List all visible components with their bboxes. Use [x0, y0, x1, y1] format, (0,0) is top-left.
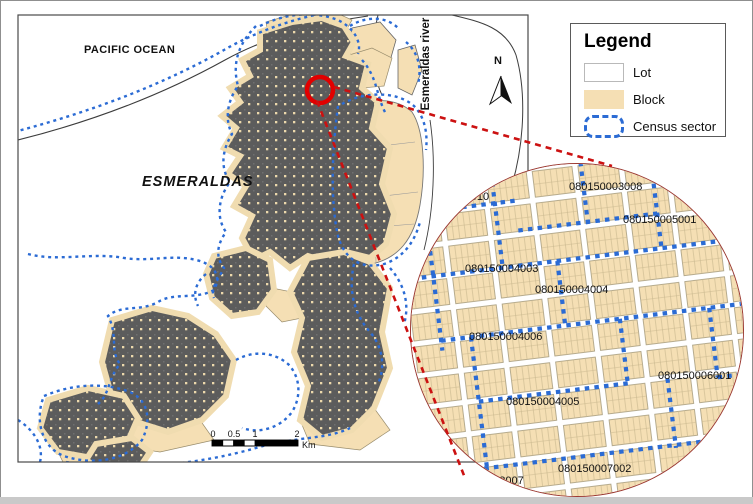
- esmeraldas-label: ESMERALDAS: [142, 174, 254, 190]
- pacific-ocean-label: PACIFIC OCEAN: [84, 44, 175, 56]
- census-sector-code: 080150004006: [469, 331, 542, 343]
- map-figure: PACIFIC OCEAN ESMERALDAS Esmeraldas rive…: [0, 0, 753, 504]
- scale-tick: 0: [210, 429, 215, 439]
- census-sector-code: 080150005001: [623, 214, 696, 226]
- census-sector-code: 080150007002: [558, 463, 631, 475]
- legend-item-label: Census sector: [633, 119, 716, 134]
- legend-item-lot: Lot: [584, 61, 725, 83]
- census-sector-code: 150003010: [434, 191, 489, 203]
- figure-bottom-border: [0, 497, 753, 504]
- scale-tick: 0.5: [228, 429, 241, 439]
- census-sector-code: 080150004004: [535, 284, 608, 296]
- lot-swatch: [584, 63, 624, 82]
- legend-panel: Legend Lot Block Census sector: [570, 23, 726, 137]
- scale-bar: [212, 440, 298, 446]
- census-sector-code: 080150003008: [569, 181, 642, 193]
- census-sector-code: 080150004005: [506, 396, 579, 408]
- legend-item-label: Block: [633, 92, 665, 107]
- scale-tick: 2: [294, 429, 299, 439]
- census-sector-code: 008007: [487, 475, 524, 487]
- scale-unit: Km: [302, 440, 316, 450]
- north-label: N: [494, 55, 502, 67]
- esmeraldas-river-label: Esmeraldas river: [420, 4, 432, 124]
- magnifier-inset: 150003010 080150003008 080150005001 0801…: [410, 163, 744, 497]
- census-sector-code: 080150004003: [465, 263, 538, 275]
- legend-item-label: Lot: [633, 65, 651, 80]
- legend-item-block: Block: [584, 88, 725, 110]
- census-sector-code: 080150006001: [658, 370, 731, 382]
- scale-tick: 1: [252, 429, 257, 439]
- legend-item-census-sector: Census sector: [584, 115, 725, 137]
- block-swatch: [584, 90, 624, 109]
- census-sector-swatch: [584, 115, 624, 138]
- legend-title: Legend: [584, 31, 725, 53]
